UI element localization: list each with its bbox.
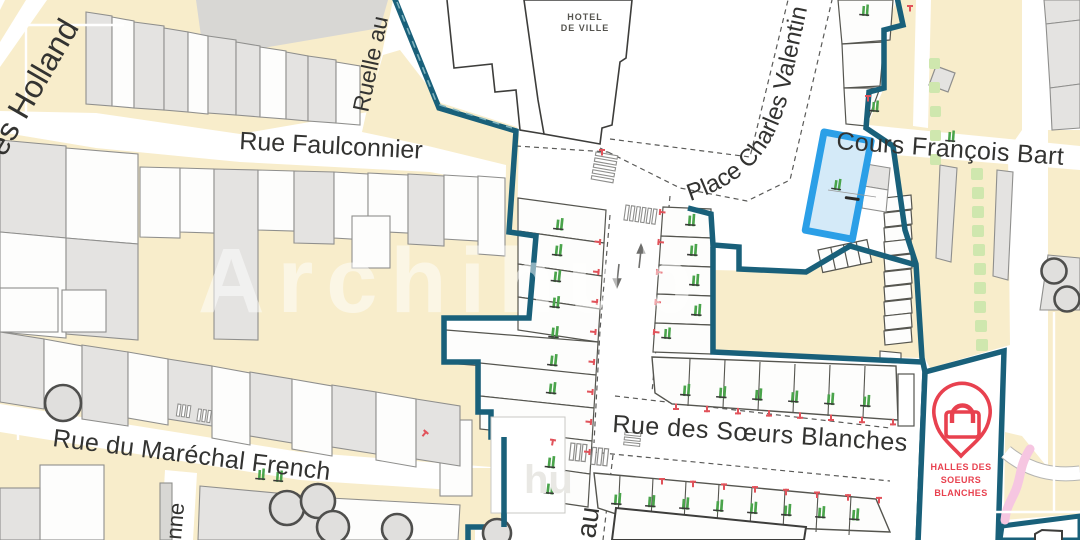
svg-text:hu: hu	[524, 458, 573, 502]
svg-text:au: au	[570, 505, 605, 540]
svg-text:SOEURS: SOEURS	[941, 475, 981, 485]
svg-text:HOTEL: HOTEL	[567, 12, 603, 22]
svg-text:nne: nne	[161, 502, 189, 540]
svg-text:BLANCHES: BLANCHES	[934, 488, 987, 498]
svg-text:DE VILLE: DE VILLE	[561, 23, 610, 33]
svg-text:Place Charles Valentin: Place Charles Valentin	[683, 4, 813, 207]
svg-text:Archihub: Archihub	[198, 230, 706, 332]
svg-text:HALLES DES: HALLES DES	[930, 462, 991, 472]
